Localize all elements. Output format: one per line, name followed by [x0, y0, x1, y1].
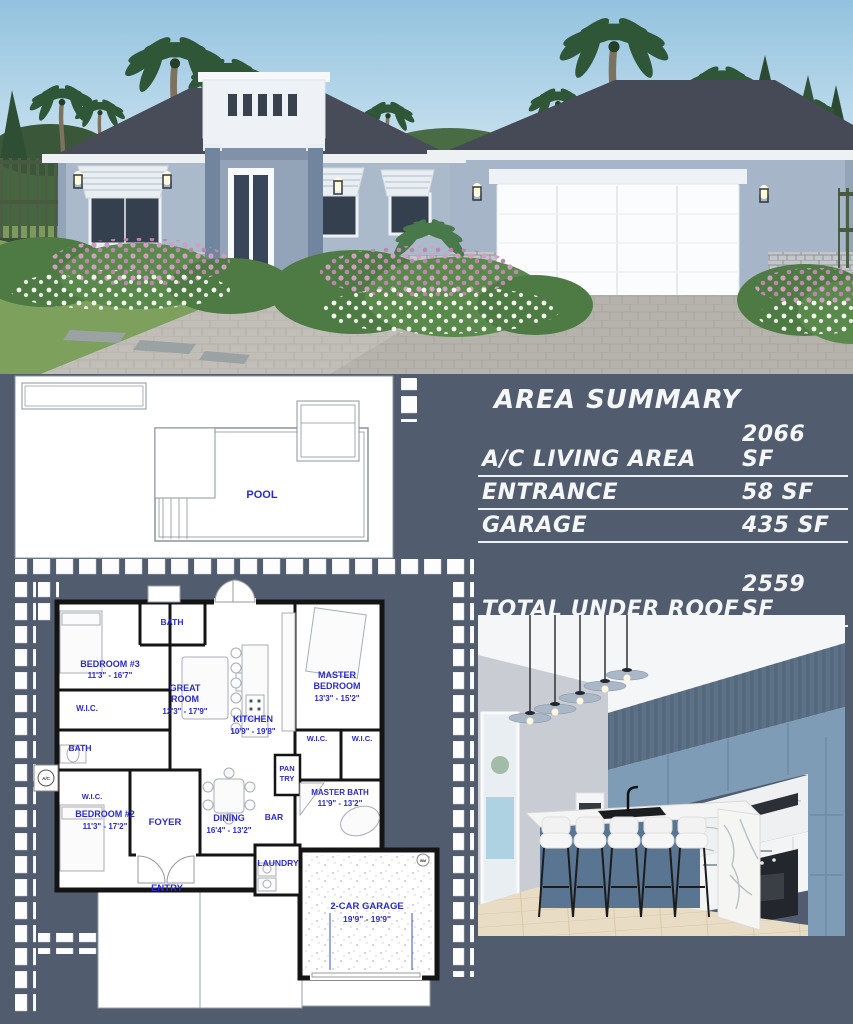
- dining-dims: 16'4" - 13'2": [206, 826, 251, 835]
- bar-label: BAR: [265, 812, 283, 822]
- spa: [297, 401, 359, 461]
- master-bath-label: MASTER BATH: [311, 788, 369, 797]
- bedroom2-dims: 11'3" - 17'2": [83, 822, 128, 831]
- area-summary: AREA SUMMARY A/C LIVING AREA 2066 SF ENT…: [478, 383, 848, 627]
- entry-label: ENTRY: [151, 883, 184, 894]
- summary-row-label: GARAGE: [482, 513, 742, 538]
- window-awning-left: [78, 166, 168, 249]
- pantry-label-2: TRY: [280, 774, 295, 783]
- marble-waterfall: [718, 809, 760, 930]
- dining-table: [214, 779, 244, 813]
- bath-top-label: BATH: [161, 617, 184, 627]
- summary-row-label: ENTRANCE: [482, 480, 742, 505]
- area-summary-title: AREA SUMMARY: [478, 383, 848, 419]
- patio-door: [482, 713, 518, 903]
- flyer-canvas: POOL: [0, 0, 853, 1024]
- great-room-dims: 12'3" - 17'9": [162, 707, 207, 716]
- kitchen-photo: [478, 615, 845, 936]
- pool-label: POOL: [246, 489, 277, 501]
- wic-master1-label: W.I.C.: [307, 734, 327, 743]
- summary-row-label: A/C LIVING AREA: [482, 447, 742, 472]
- kitchen-dims: 10'9" - 19'8": [230, 727, 275, 736]
- water-meter: WM: [417, 854, 429, 866]
- great-room-label-1: GREAT: [170, 683, 201, 693]
- garage-dims: 19'9" - 19'9": [343, 914, 391, 924]
- site-plan: POOL: [10, 373, 478, 1024]
- master-bedroom-label-2: BEDROOM: [314, 681, 361, 691]
- summary-row-living: A/C LIVING AREA 2066 SF: [478, 419, 848, 477]
- foyer-room: [130, 770, 200, 855]
- wic-bed3-label: W.I.C.: [76, 704, 98, 713]
- pool-plan: POOL: [15, 376, 393, 558]
- bedroom3-label: BEDROOM #3: [80, 659, 140, 669]
- master-bath-dims: 11'9" - 13'2": [318, 799, 363, 808]
- master-bedroom-dims: 13'3" - 15'2": [314, 694, 359, 703]
- kitchen-label: KITCHEN: [233, 714, 273, 724]
- laundry-label: LAUNDRY: [257, 858, 299, 868]
- summary-row-value: 2066 SF: [742, 422, 842, 472]
- ac-unit: A/C: [34, 765, 58, 791]
- dining-label: DINING: [213, 813, 245, 823]
- summary-row-entrance: ENTRANCE 58 SF: [478, 477, 848, 510]
- pantry-label-1: PAN: [279, 764, 294, 773]
- exterior-photo: [0, 0, 853, 374]
- summary-row-value: 58 SF: [742, 480, 842, 505]
- summary-row-value: 435 SF: [742, 513, 842, 538]
- bath-left-label: BATH: [69, 743, 92, 753]
- great-room-label-2: ROOM: [171, 694, 199, 704]
- bedroom3-dims: 11'3" - 16'7": [88, 671, 133, 680]
- summary-row-garage: GARAGE 435 SF: [478, 510, 848, 543]
- wic-master2-label: W.I.C.: [352, 734, 372, 743]
- right-fence: [838, 188, 853, 268]
- wic-bed2-label: W.I.C.: [82, 792, 102, 801]
- foyer-label: FOYER: [149, 817, 182, 828]
- wm-label: WM: [420, 859, 426, 863]
- left-fence: [0, 158, 64, 246]
- pool-sun-shelf: [155, 428, 215, 498]
- right-fascia: [427, 150, 853, 160]
- bedroom2-label: BEDROOM #2: [75, 809, 135, 819]
- garage-label: 2-CAR GARAGE: [330, 901, 403, 912]
- master-bedroom-label-1: MASTER: [318, 670, 357, 680]
- ac-label: A/C: [42, 776, 51, 781]
